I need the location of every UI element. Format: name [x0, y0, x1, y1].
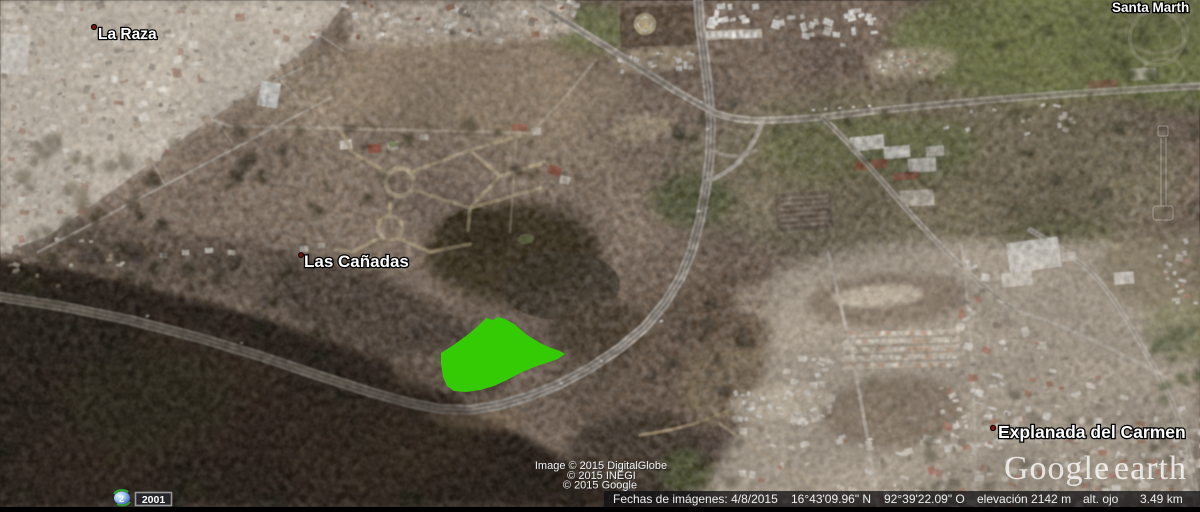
- svg-text:Fechas de imágenes: 4/8/2015: Fechas de imágenes: 4/8/2015: [613, 492, 778, 506]
- svg-text:Google: Google: [1004, 450, 1110, 487]
- svg-text:Santa Marth: Santa Marth: [1112, 0, 1189, 15]
- svg-text:La Raza: La Raza: [98, 26, 157, 43]
- svg-text:elevación 2142 m: elevación 2142 m: [977, 492, 1071, 506]
- svg-text:© 2015 Google: © 2015 Google: [563, 480, 637, 492]
- svg-text:16°43'09.96" N: 16°43'09.96" N: [791, 492, 871, 506]
- svg-text:alt. ojo: alt. ojo: [1083, 492, 1119, 506]
- svg-text:2: 2: [119, 494, 124, 504]
- svg-text:Las Cañadas: Las Cañadas: [304, 252, 409, 271]
- svg-text:earth: earth: [1114, 450, 1187, 487]
- svg-text:92°39'22.09" O: 92°39'22.09" O: [884, 492, 965, 506]
- svg-text:3.49 km: 3.49 km: [1140, 492, 1183, 506]
- svg-text:2001: 2001: [142, 494, 166, 506]
- svg-text:Explanada del Carmen: Explanada del Carmen: [998, 422, 1186, 442]
